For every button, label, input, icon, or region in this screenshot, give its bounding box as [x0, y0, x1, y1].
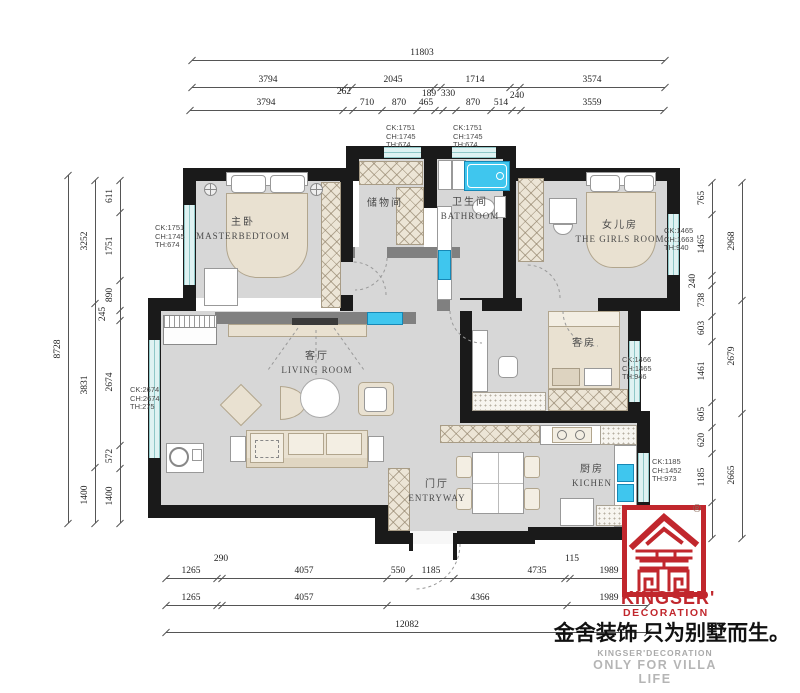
room-name-en: LIVING ROOM [252, 364, 382, 376]
dimension: 290 [201, 554, 241, 566]
dimension: 4366 [448, 593, 512, 603]
dimension: 240 [497, 91, 537, 103]
dimension: 2665 [727, 443, 739, 507]
dimension: 330 [428, 89, 468, 101]
dimension: 245 [98, 294, 110, 334]
dimension [68, 175, 69, 523]
dimension: 12082 [375, 620, 439, 630]
dimension [192, 87, 665, 88]
dimension [190, 110, 664, 111]
spec-line: TH:946 [622, 373, 652, 382]
room-name-cn: 卫生间 [410, 196, 530, 210]
floor-plan: 主卧 MASTERBEDTOOM 储物间 卫生间 BATHROOM 女儿房 TH… [0, 0, 800, 693]
dimension: 3574 [560, 75, 624, 85]
spec-line: TH:973 [652, 475, 682, 484]
dimension: 2674 [105, 350, 117, 414]
room-name-en: MASTERBEDTOOM [178, 230, 308, 242]
dimension: 1265 [159, 593, 223, 603]
room-name-cn: 门厅 [377, 478, 497, 492]
window-spec: CK:1466 CH:1465 TH:946 [622, 356, 652, 382]
dimension: 4057 [272, 566, 336, 576]
dimension: 4735 [505, 566, 569, 576]
dimension: 262 [324, 87, 364, 99]
room-name-en: ENTRYWAY [377, 492, 497, 504]
spec-line: TH:674 [155, 241, 185, 250]
room-name-cn: 厨房 [532, 463, 652, 477]
dimension: 1714 [443, 75, 507, 85]
window-spec: CK:1185 CH:1452 TH:973 [652, 458, 682, 484]
spec-line: TH:674 [386, 141, 416, 150]
dimension: 1265 [159, 566, 223, 576]
dimension: 1185 [399, 566, 463, 576]
spec-line: TH:275 [130, 403, 160, 412]
room-name-en: KICHEN [532, 477, 652, 489]
dimension [192, 60, 665, 61]
dimension: 11803 [390, 48, 454, 58]
room-label-living: 客厅 LIVING ROOM [252, 350, 382, 376]
spec-line: TH:940 [664, 244, 694, 253]
window-spec: CK:1751 CH:1745 TH:674 [386, 124, 416, 150]
dimension: 2968 [727, 209, 739, 273]
dimension [166, 605, 648, 606]
window-spec: CK:1465 CH:1663 TH:940 [664, 227, 694, 253]
window-spec: CK:2674 CH:2674 TH:275 [130, 386, 160, 412]
window-spec: CK:1751 CH:1745 TH:674 [453, 124, 483, 150]
dimension [742, 182, 743, 538]
dimension: 2045 [361, 75, 425, 85]
dimension: 1400 [105, 464, 117, 528]
dimension [712, 182, 713, 538]
logo-brand: KINGSER' [621, 588, 715, 609]
room-label-guest: 客房 [524, 337, 644, 351]
logo-house-icon [627, 510, 701, 592]
room-label-bathroom: 卫生间 BATHROOM [410, 196, 530, 222]
logo-mark [622, 505, 706, 597]
room-name-cn: 客厅 [252, 350, 382, 364]
dimension: 4057 [272, 593, 336, 603]
dimension: 3252 [80, 209, 92, 273]
room-name-en: BATHROOM [410, 210, 530, 222]
dimension: 2679 [727, 324, 739, 388]
logo-slogan: 金舍装饰 只为别墅而生。 [536, 617, 790, 647]
logo-caption-en: KINGSER'DECORATION [575, 648, 735, 658]
dimension: 3559 [560, 98, 624, 108]
dimension: 3794 [236, 75, 300, 85]
dimension [120, 180, 121, 523]
dimension: 1400 [80, 463, 92, 527]
room-label-master: 主卧 MASTERBEDTOOM [178, 216, 308, 242]
dimension: 3831 [80, 353, 92, 417]
room-label-entry: 门厅 ENTRYWAY [377, 478, 497, 504]
dimension: 115 [552, 554, 592, 566]
window-spec: CK:1751 CH:1745 TH:674 [155, 224, 185, 250]
spec-line: TH:674 [453, 141, 483, 150]
registered-mark: ® [693, 503, 701, 515]
room-name-cn: 主卧 [178, 216, 308, 230]
room-label-kitchen: 厨房 KICHEN [532, 463, 652, 489]
dimension: 3794 [234, 98, 298, 108]
dimension [95, 180, 96, 523]
room-name-cn: 客房 [524, 337, 644, 351]
logo-caption-sub: ONLY FOR VILLA LIFE [575, 658, 735, 686]
dimension: 8728 [53, 317, 65, 381]
dimension: 240 [688, 261, 700, 301]
